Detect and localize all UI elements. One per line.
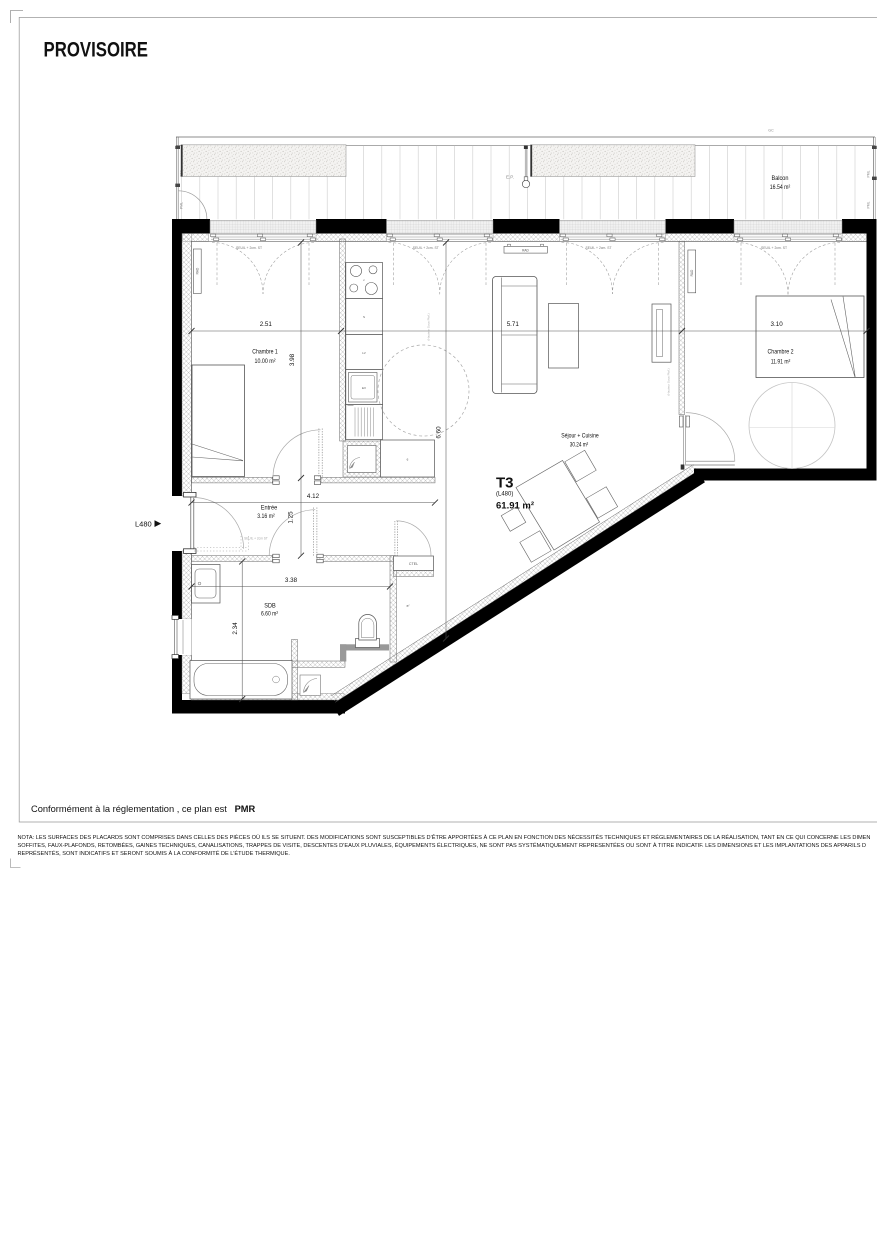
svg-text:1.25: 1.25 [288, 511, 295, 524]
svg-text:(Hauteur Sous Plaf.): (Hauteur Sous Plaf.) [427, 313, 431, 340]
svg-text:REPRÉSENTÉS, SONT INDICATIFS E: REPRÉSENTÉS, SONT INDICATIFS ET SERONT S… [18, 850, 291, 857]
svg-text:Séjour + Cuisine: Séjour + Cuisine [561, 433, 599, 440]
svg-text:Chambre 1: Chambre 1 [252, 349, 278, 356]
svg-text:16.54 m²: 16.54 m² [770, 184, 791, 191]
svg-text:RAD: RAD [690, 269, 694, 276]
svg-text:NOTA: LES SURFACES DES PLACARD: NOTA: LES SURFACES DES PLACARDS SONT COM… [18, 833, 871, 841]
svg-text:e: e [407, 458, 409, 462]
svg-text:61.91 m²: 61.91 m² [496, 501, 534, 512]
svg-text:RAD: RAD [196, 267, 200, 274]
svg-text:SEUIL + 2cm. ST: SEUIL + 2cm. ST [761, 246, 787, 250]
svg-text:LV: LV [362, 351, 365, 355]
svg-text:T3: T3 [496, 475, 514, 492]
svg-text:2.34: 2.34 [232, 622, 239, 635]
svg-text:SOFFITES, FAUX-PLAFONDS, RETOM: SOFFITES, FAUX-PLAFONDS, RETOMBÉES, GAIN… [18, 842, 867, 849]
svg-text:3.16 m²: 3.16 m² [257, 513, 275, 520]
svg-text:6.60: 6.60 [436, 426, 443, 439]
svg-text:SEUIL + 2cm ST: SEUIL + 2cm ST [244, 537, 268, 541]
svg-text:SDB: SDB [264, 603, 276, 610]
svg-text:RAD: RAD [522, 248, 529, 252]
svg-text:CTEL: CTEL [409, 562, 418, 566]
svg-text:Entrée: Entrée [261, 505, 278, 512]
svg-text:SEUIL + 2cm. ST: SEUIL + 2cm. ST [236, 246, 262, 250]
svg-text:5.71: 5.71 [507, 321, 520, 328]
svg-text:L480: L480 [135, 519, 152, 528]
svg-text:PROVISOIRE: PROVISOIRE [44, 39, 149, 62]
svg-text:PML: PML [867, 201, 871, 208]
svg-text:10.00 m²: 10.00 m² [255, 358, 276, 365]
svg-text:3.10: 3.10 [771, 321, 784, 328]
svg-text:e’: e’ [406, 603, 409, 608]
svg-text:4.12: 4.12 [307, 493, 320, 500]
svg-text:11.91 m²: 11.91 m² [771, 359, 791, 366]
svg-text:E.P.: E.P. [506, 175, 514, 180]
svg-text:(Hauteur Sous Plaf.): (Hauteur Sous Plaf.) [667, 368, 671, 395]
svg-text:Conformément à la réglementati: Conformément à la réglementation , ce pl… [31, 804, 256, 814]
svg-text:Balcon: Balcon [772, 175, 789, 182]
svg-text:2.51: 2.51 [260, 321, 273, 328]
svg-text:S: S [363, 315, 365, 319]
svg-text:3.38: 3.38 [285, 577, 298, 584]
svg-text:GC: GC [768, 129, 774, 133]
svg-text:Chambre 2: Chambre 2 [768, 349, 794, 356]
svg-text:SEUIL + 2cm. ST: SEUIL + 2cm. ST [413, 246, 439, 250]
svg-text:3.98: 3.98 [289, 353, 296, 366]
svg-text:(L480): (L480) [496, 492, 513, 498]
svg-text:PML: PML [180, 202, 184, 209]
svg-text:PML: PML [867, 170, 871, 177]
svg-text:SEUIL + 2cm. ST: SEUIL + 2cm. ST [586, 246, 612, 250]
svg-text:6.60 m²: 6.60 m² [261, 611, 278, 618]
svg-text:30.24 m²: 30.24 m² [570, 442, 589, 449]
svg-text:EV: EV [362, 386, 366, 390]
